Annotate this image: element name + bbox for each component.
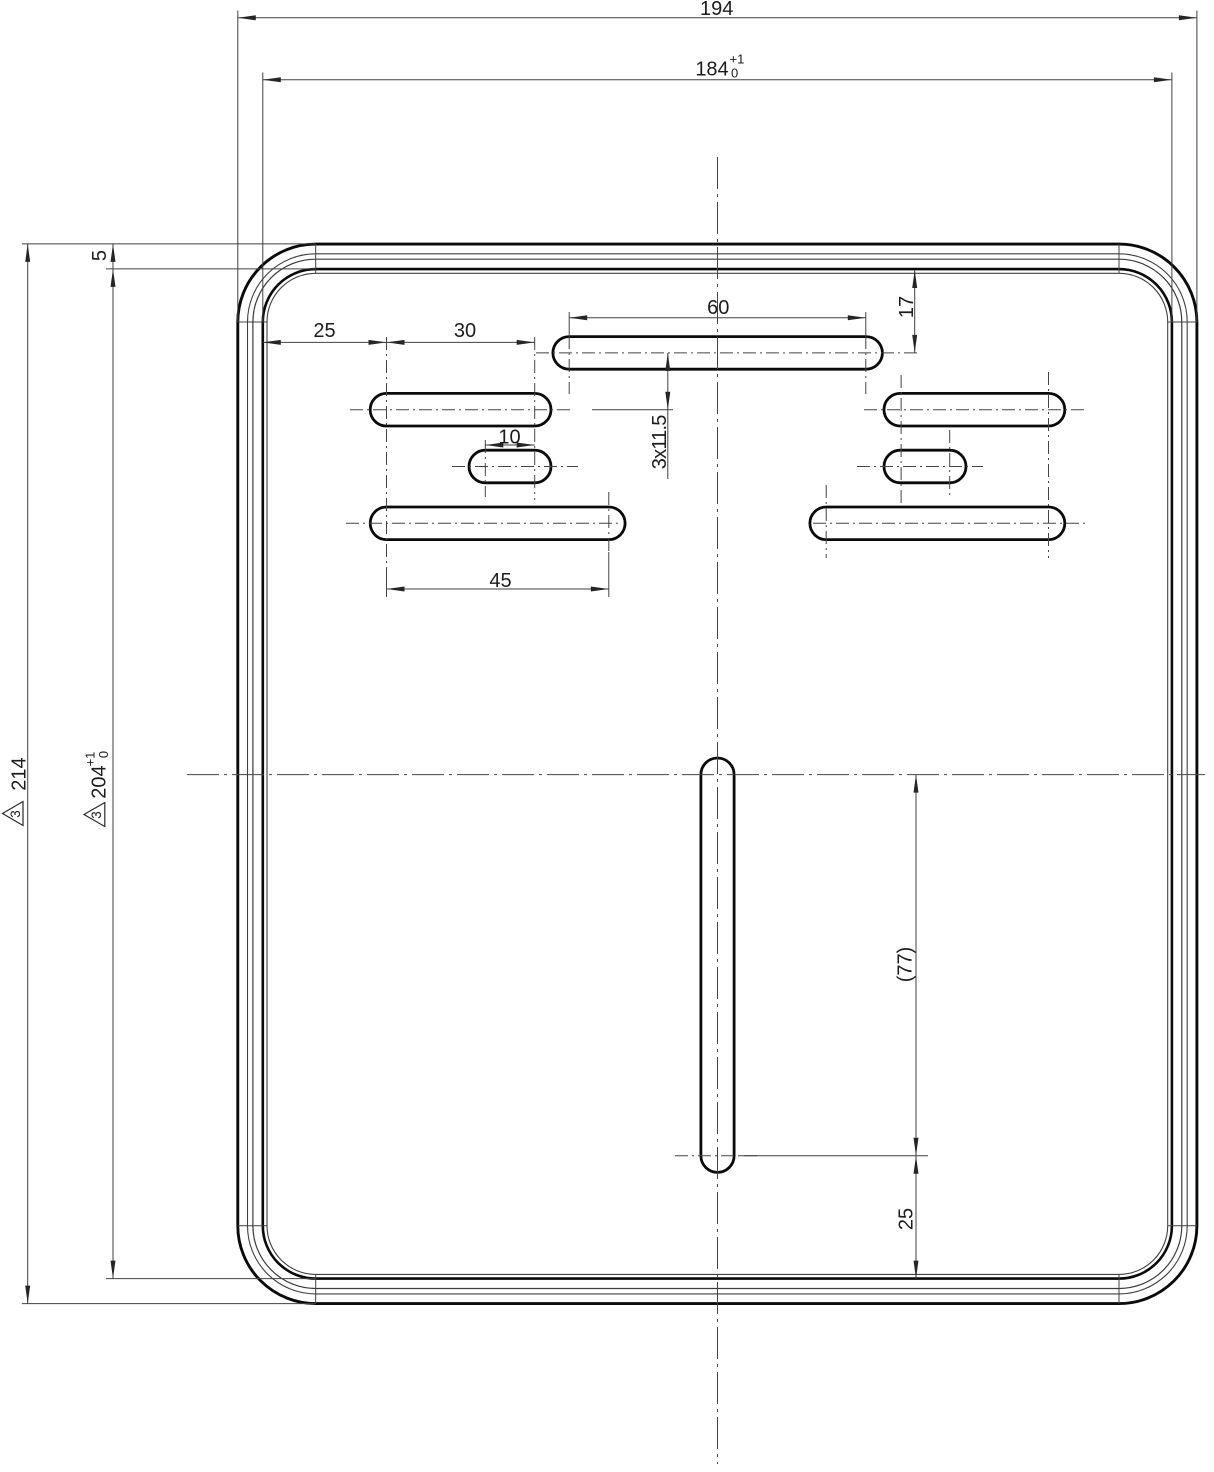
svg-text:17: 17 <box>896 296 918 318</box>
svg-text:(77): (77) <box>895 947 917 983</box>
svg-text:45: 45 <box>489 570 511 592</box>
svg-text:3: 3 <box>8 810 23 818</box>
svg-text:204: 204 <box>88 765 110 798</box>
svg-text:25: 25 <box>313 320 335 342</box>
svg-text:+1: +1 <box>730 51 745 66</box>
svg-text:60: 60 <box>707 297 729 319</box>
svg-text:0: 0 <box>731 66 738 81</box>
svg-text:30: 30 <box>454 320 476 342</box>
svg-text:3: 3 <box>89 811 104 819</box>
svg-text:3x11.5: 3x11.5 <box>649 415 671 469</box>
svg-text:184: 184 <box>695 59 728 81</box>
svg-text:25: 25 <box>896 1208 918 1230</box>
svg-text:194: 194 <box>700 0 733 20</box>
svg-text:0: 0 <box>96 751 111 758</box>
svg-text:5: 5 <box>89 250 111 261</box>
svg-text:214: 214 <box>8 757 30 790</box>
svg-text:10: 10 <box>498 426 520 448</box>
